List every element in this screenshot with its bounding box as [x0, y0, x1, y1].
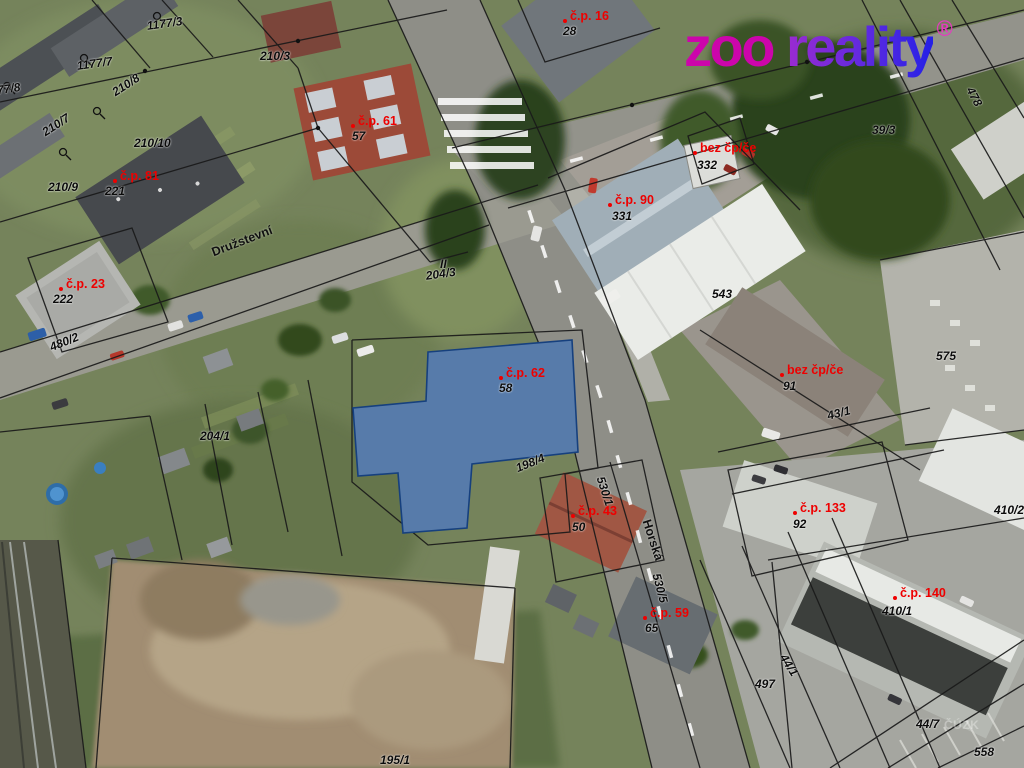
map-watermark: ČÚZK [944, 718, 979, 732]
aerial-imagery [0, 0, 1024, 768]
zoo-reality-logo: zoo reality® [684, 18, 953, 75]
logo-zoo-text: zoo [684, 15, 786, 78]
aerial-map-canvas[interactable] [0, 0, 1024, 768]
registered-mark-icon: ® [936, 16, 952, 41]
logo-reality-text: reality [786, 15, 934, 78]
